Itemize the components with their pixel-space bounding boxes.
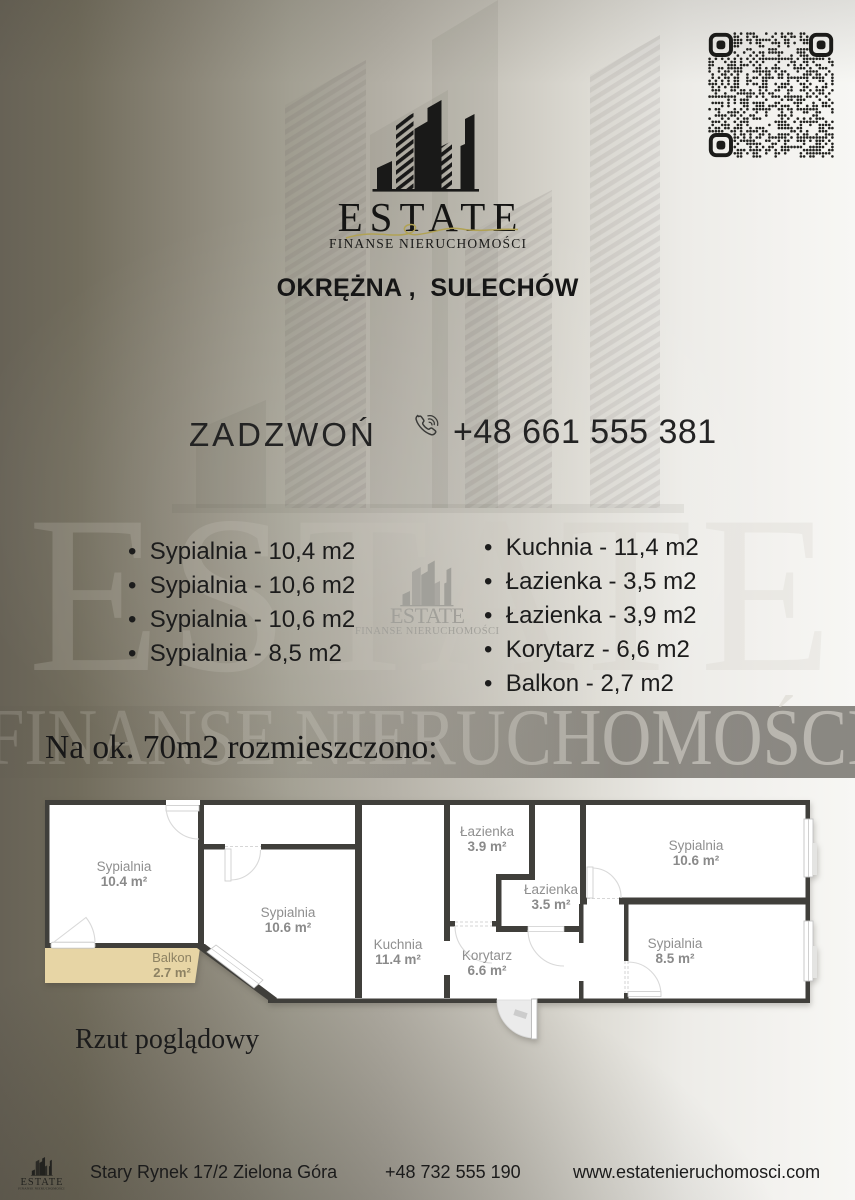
svg-text:8.5 m²: 8.5 m²: [655, 951, 695, 966]
svg-text:11.4 m²: 11.4 m²: [375, 952, 421, 967]
svg-text:ESTATE: ESTATE: [390, 603, 465, 628]
svg-text:6.6 m²: 6.6 m²: [467, 963, 507, 978]
svg-text:Sypialnia: Sypialnia: [97, 859, 152, 874]
svg-text:3.9 m²: 3.9 m²: [467, 839, 507, 854]
svg-text:Kuchnia: Kuchnia: [374, 937, 423, 952]
svg-text:Korytarz: Korytarz: [462, 948, 513, 963]
svg-text:Łazienka: Łazienka: [460, 824, 515, 839]
svg-text:Balkon: Balkon: [152, 950, 192, 965]
svg-text:10.4 m²: 10.4 m²: [101, 874, 148, 889]
svg-text:3.5 m²: 3.5 m²: [531, 897, 571, 912]
svg-text:FINANSE NIERUCHOMOŚCI: FINANSE NIERUCHOMOŚCI: [18, 1185, 64, 1190]
svg-text:Sypialnia: Sypialnia: [261, 905, 316, 920]
svg-text:Sypialnia: Sypialnia: [648, 936, 703, 951]
svg-text:FINANSE NIERUCHOMOŚCI: FINANSE NIERUCHOMOŚCI: [355, 625, 500, 637]
svg-text:10.6 m²: 10.6 m²: [265, 920, 312, 935]
svg-text:10.6 m²: 10.6 m²: [673, 853, 720, 868]
svg-text:2.7 m²: 2.7 m²: [153, 965, 191, 980]
svg-text:Łazienka: Łazienka: [524, 882, 579, 897]
svg-text:Sypialnia: Sypialnia: [669, 838, 724, 853]
